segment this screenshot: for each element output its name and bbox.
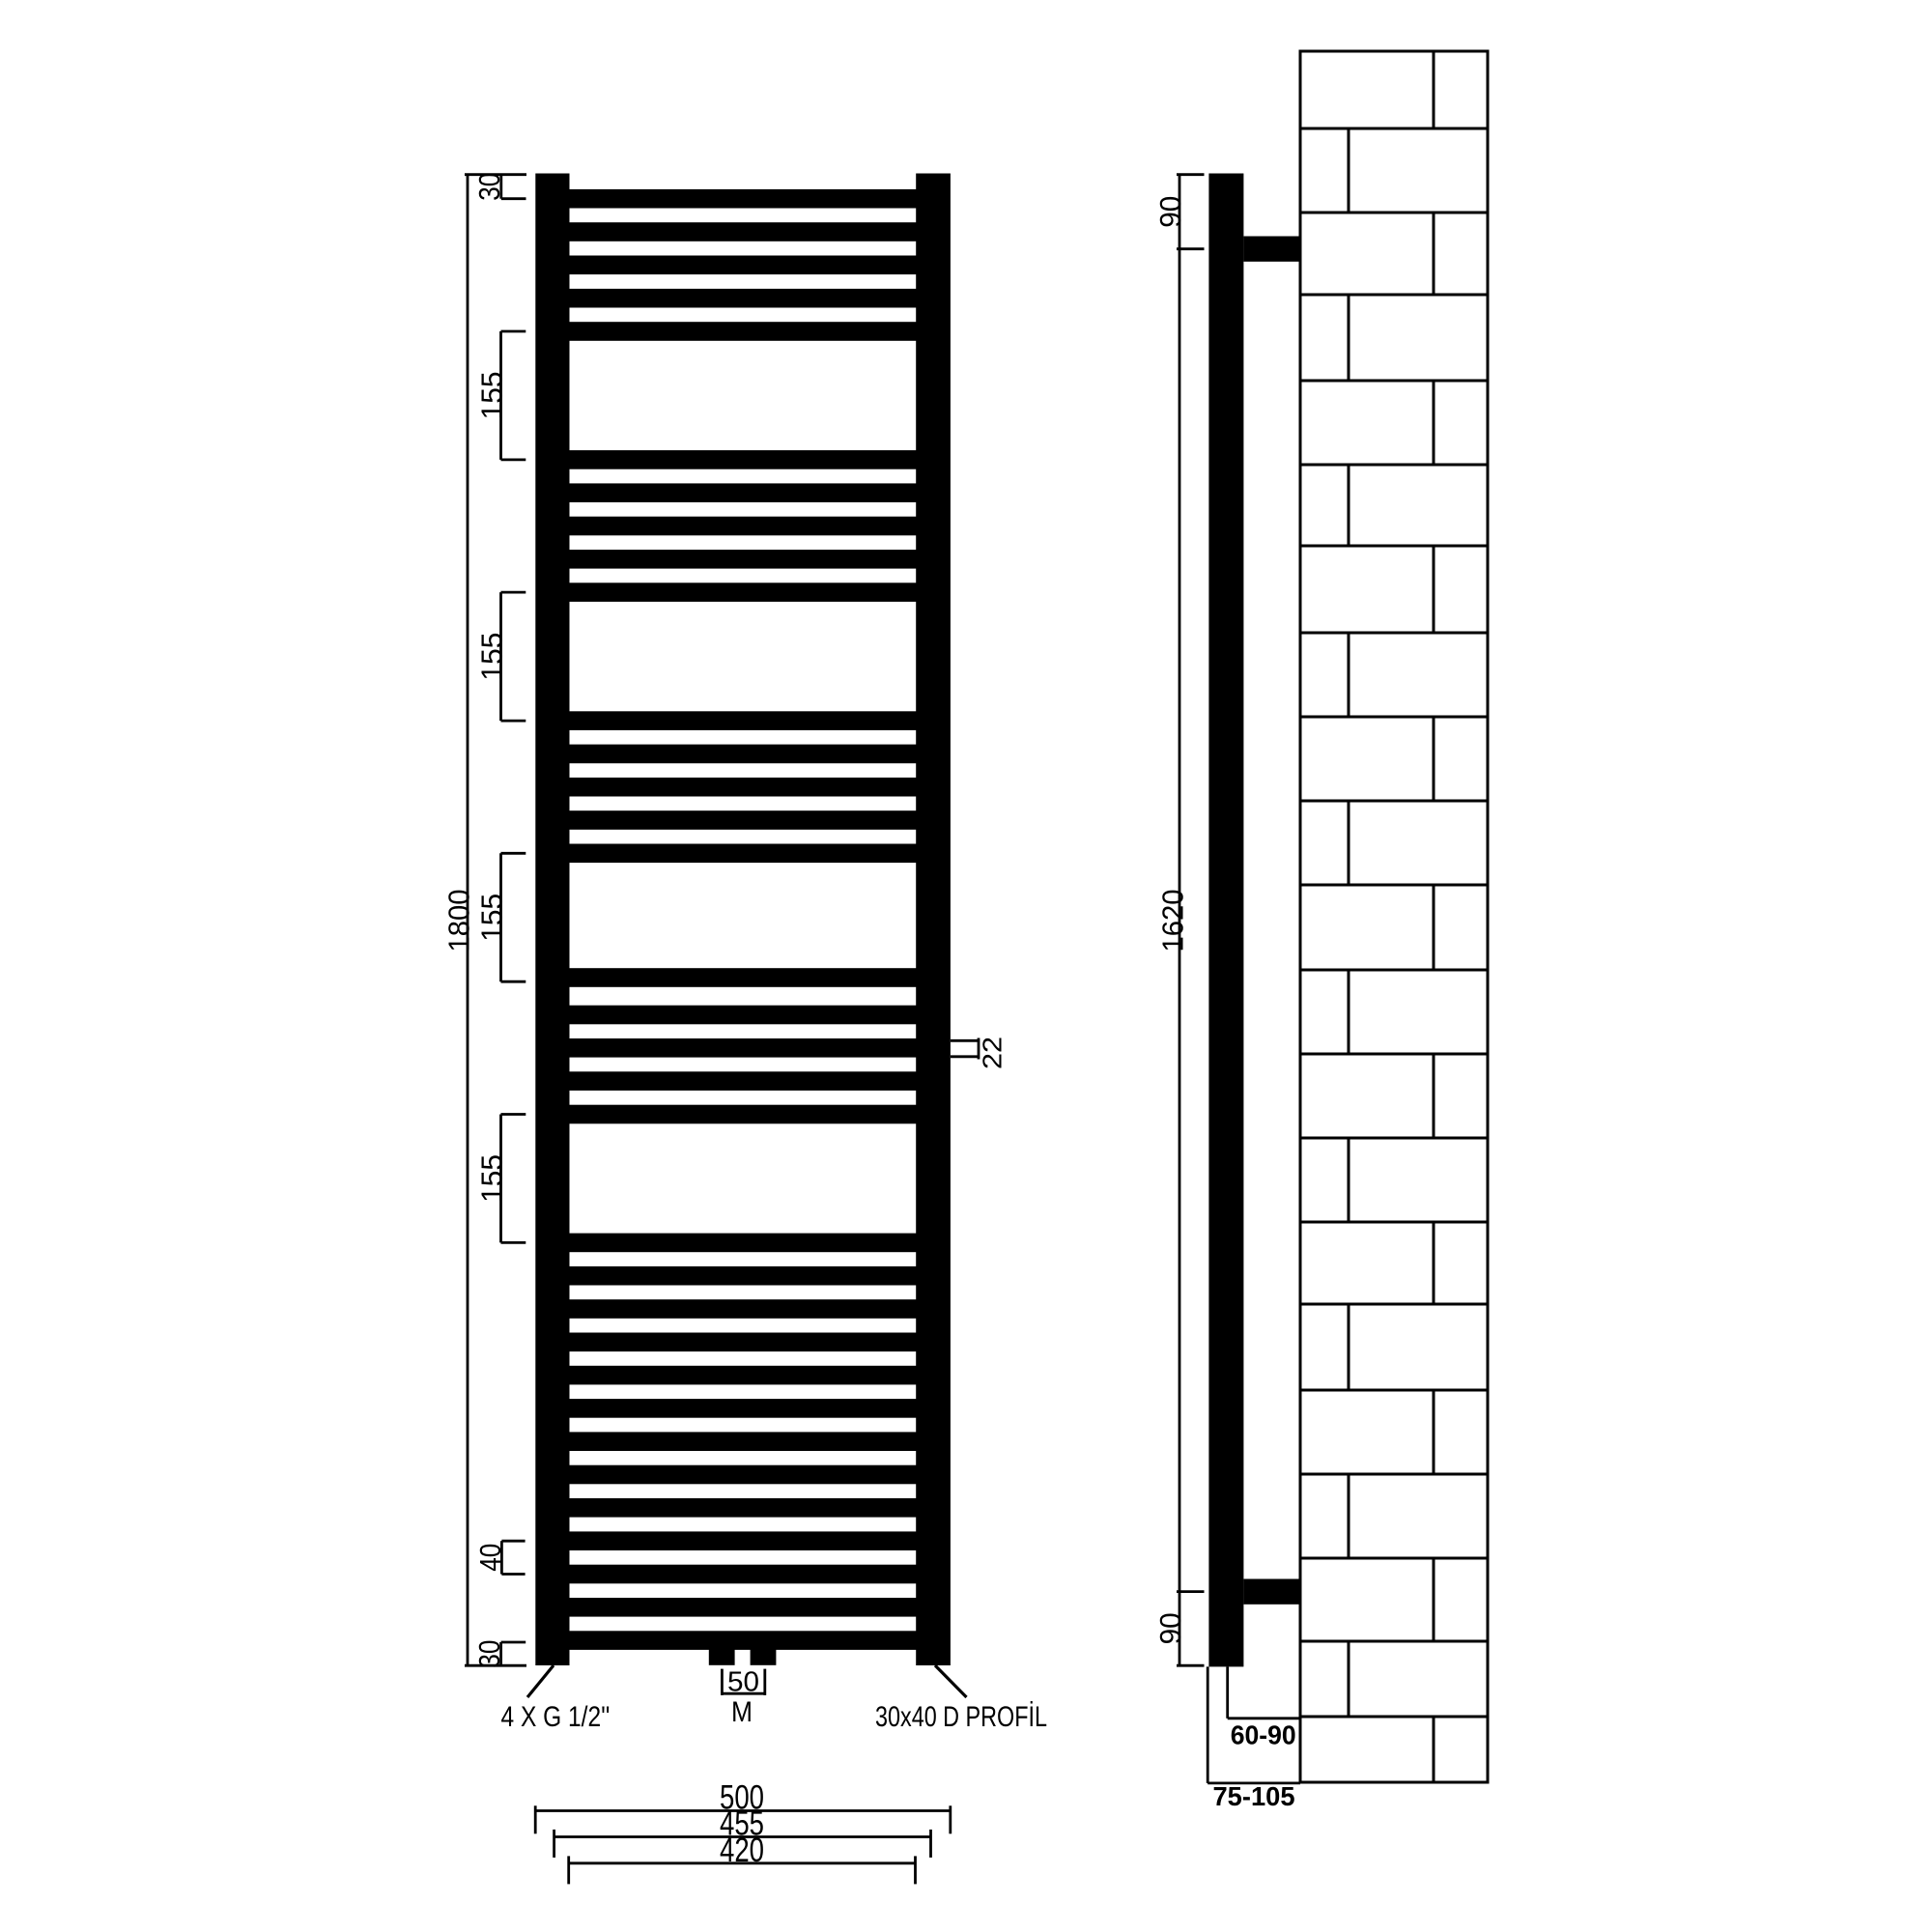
svg-text:155: 155 (475, 371, 509, 419)
svg-text:30x40 D PROFİL: 30x40 D PROFİL (875, 1701, 1047, 1733)
svg-text:155: 155 (475, 1154, 509, 1203)
svg-text:50: 50 (727, 1667, 759, 1698)
svg-text:420: 420 (720, 1832, 764, 1869)
svg-text:155: 155 (475, 633, 509, 681)
svg-text:90: 90 (1153, 1612, 1187, 1644)
svg-text:1800: 1800 (442, 890, 476, 952)
svg-text:M: M (731, 1696, 753, 1728)
svg-text:40: 40 (473, 1544, 507, 1572)
svg-text:30: 30 (472, 1640, 506, 1668)
svg-text:90: 90 (1153, 196, 1187, 228)
svg-text:1620: 1620 (1156, 890, 1190, 952)
svg-text:155: 155 (475, 894, 509, 942)
svg-text:75-105: 75-105 (1213, 1781, 1295, 1811)
svg-text:30: 30 (472, 173, 506, 201)
svg-text:4 X G 1/2'': 4 X G 1/2'' (501, 1701, 611, 1733)
svg-text:60-90: 60-90 (1231, 1720, 1296, 1750)
svg-text:22: 22 (978, 1037, 1008, 1069)
